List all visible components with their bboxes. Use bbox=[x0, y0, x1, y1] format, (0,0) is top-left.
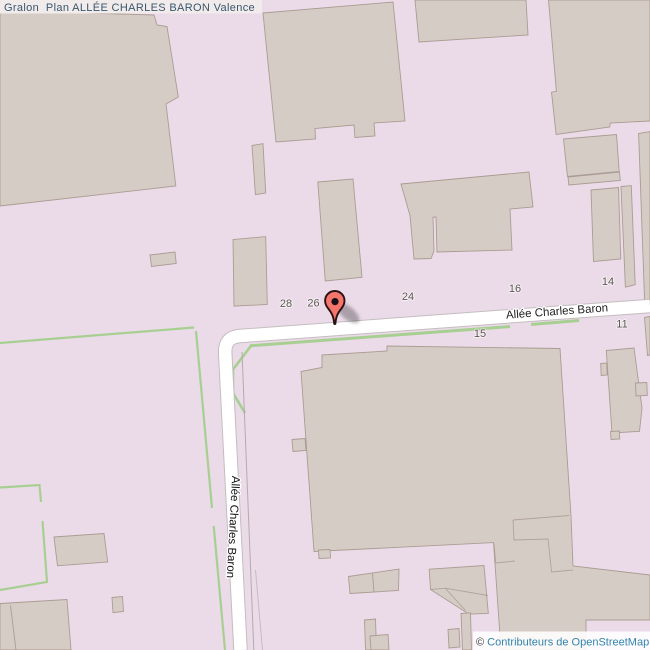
svg-text:15: 15 bbox=[474, 328, 486, 340]
svg-text:Gralon Plan ALLÉE CHARLES BAR: Gralon Plan ALLÉE CHARLES BARON Valence bbox=[4, 1, 255, 14]
svg-text:11: 11 bbox=[616, 319, 627, 331]
svg-text:16: 16 bbox=[509, 283, 521, 295]
svg-text:24: 24 bbox=[402, 291, 414, 303]
svg-text:26: 26 bbox=[307, 298, 319, 310]
svg-text:28: 28 bbox=[280, 298, 292, 310]
svg-text:14: 14 bbox=[602, 276, 614, 288]
svg-text:© Contributeurs de OpenStreetM: © Contributeurs de OpenStreetMap bbox=[476, 637, 649, 649]
